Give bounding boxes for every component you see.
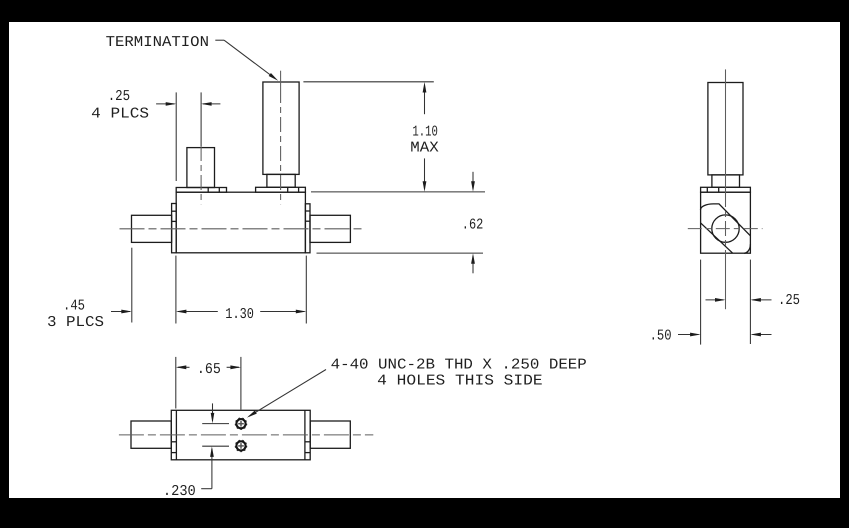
svg-text:.45: .45 xyxy=(63,297,85,314)
svg-text:.25: .25 xyxy=(108,88,130,105)
svg-text:TERMINATION: TERMINATION xyxy=(106,34,209,51)
svg-text:.25: .25 xyxy=(778,292,800,309)
svg-text:.65: .65 xyxy=(197,361,221,378)
svg-text:.62: .62 xyxy=(462,217,484,234)
svg-text:.230: .230 xyxy=(163,483,196,500)
svg-text:.50: .50 xyxy=(650,328,672,345)
svg-text:4-40 UNC-2B THD X .250 DEEP: 4-40 UNC-2B THD X .250 DEEP xyxy=(331,356,587,373)
svg-text:4 PLCS: 4 PLCS xyxy=(91,105,149,122)
svg-text:1.10: 1.10 xyxy=(412,124,438,141)
svg-text:3 PLCS: 3 PLCS xyxy=(47,314,104,331)
svg-text:1.30: 1.30 xyxy=(225,306,254,323)
svg-text:4 HOLES THIS SIDE: 4 HOLES THIS SIDE xyxy=(377,373,542,390)
svg-text:MAX: MAX xyxy=(410,140,438,157)
